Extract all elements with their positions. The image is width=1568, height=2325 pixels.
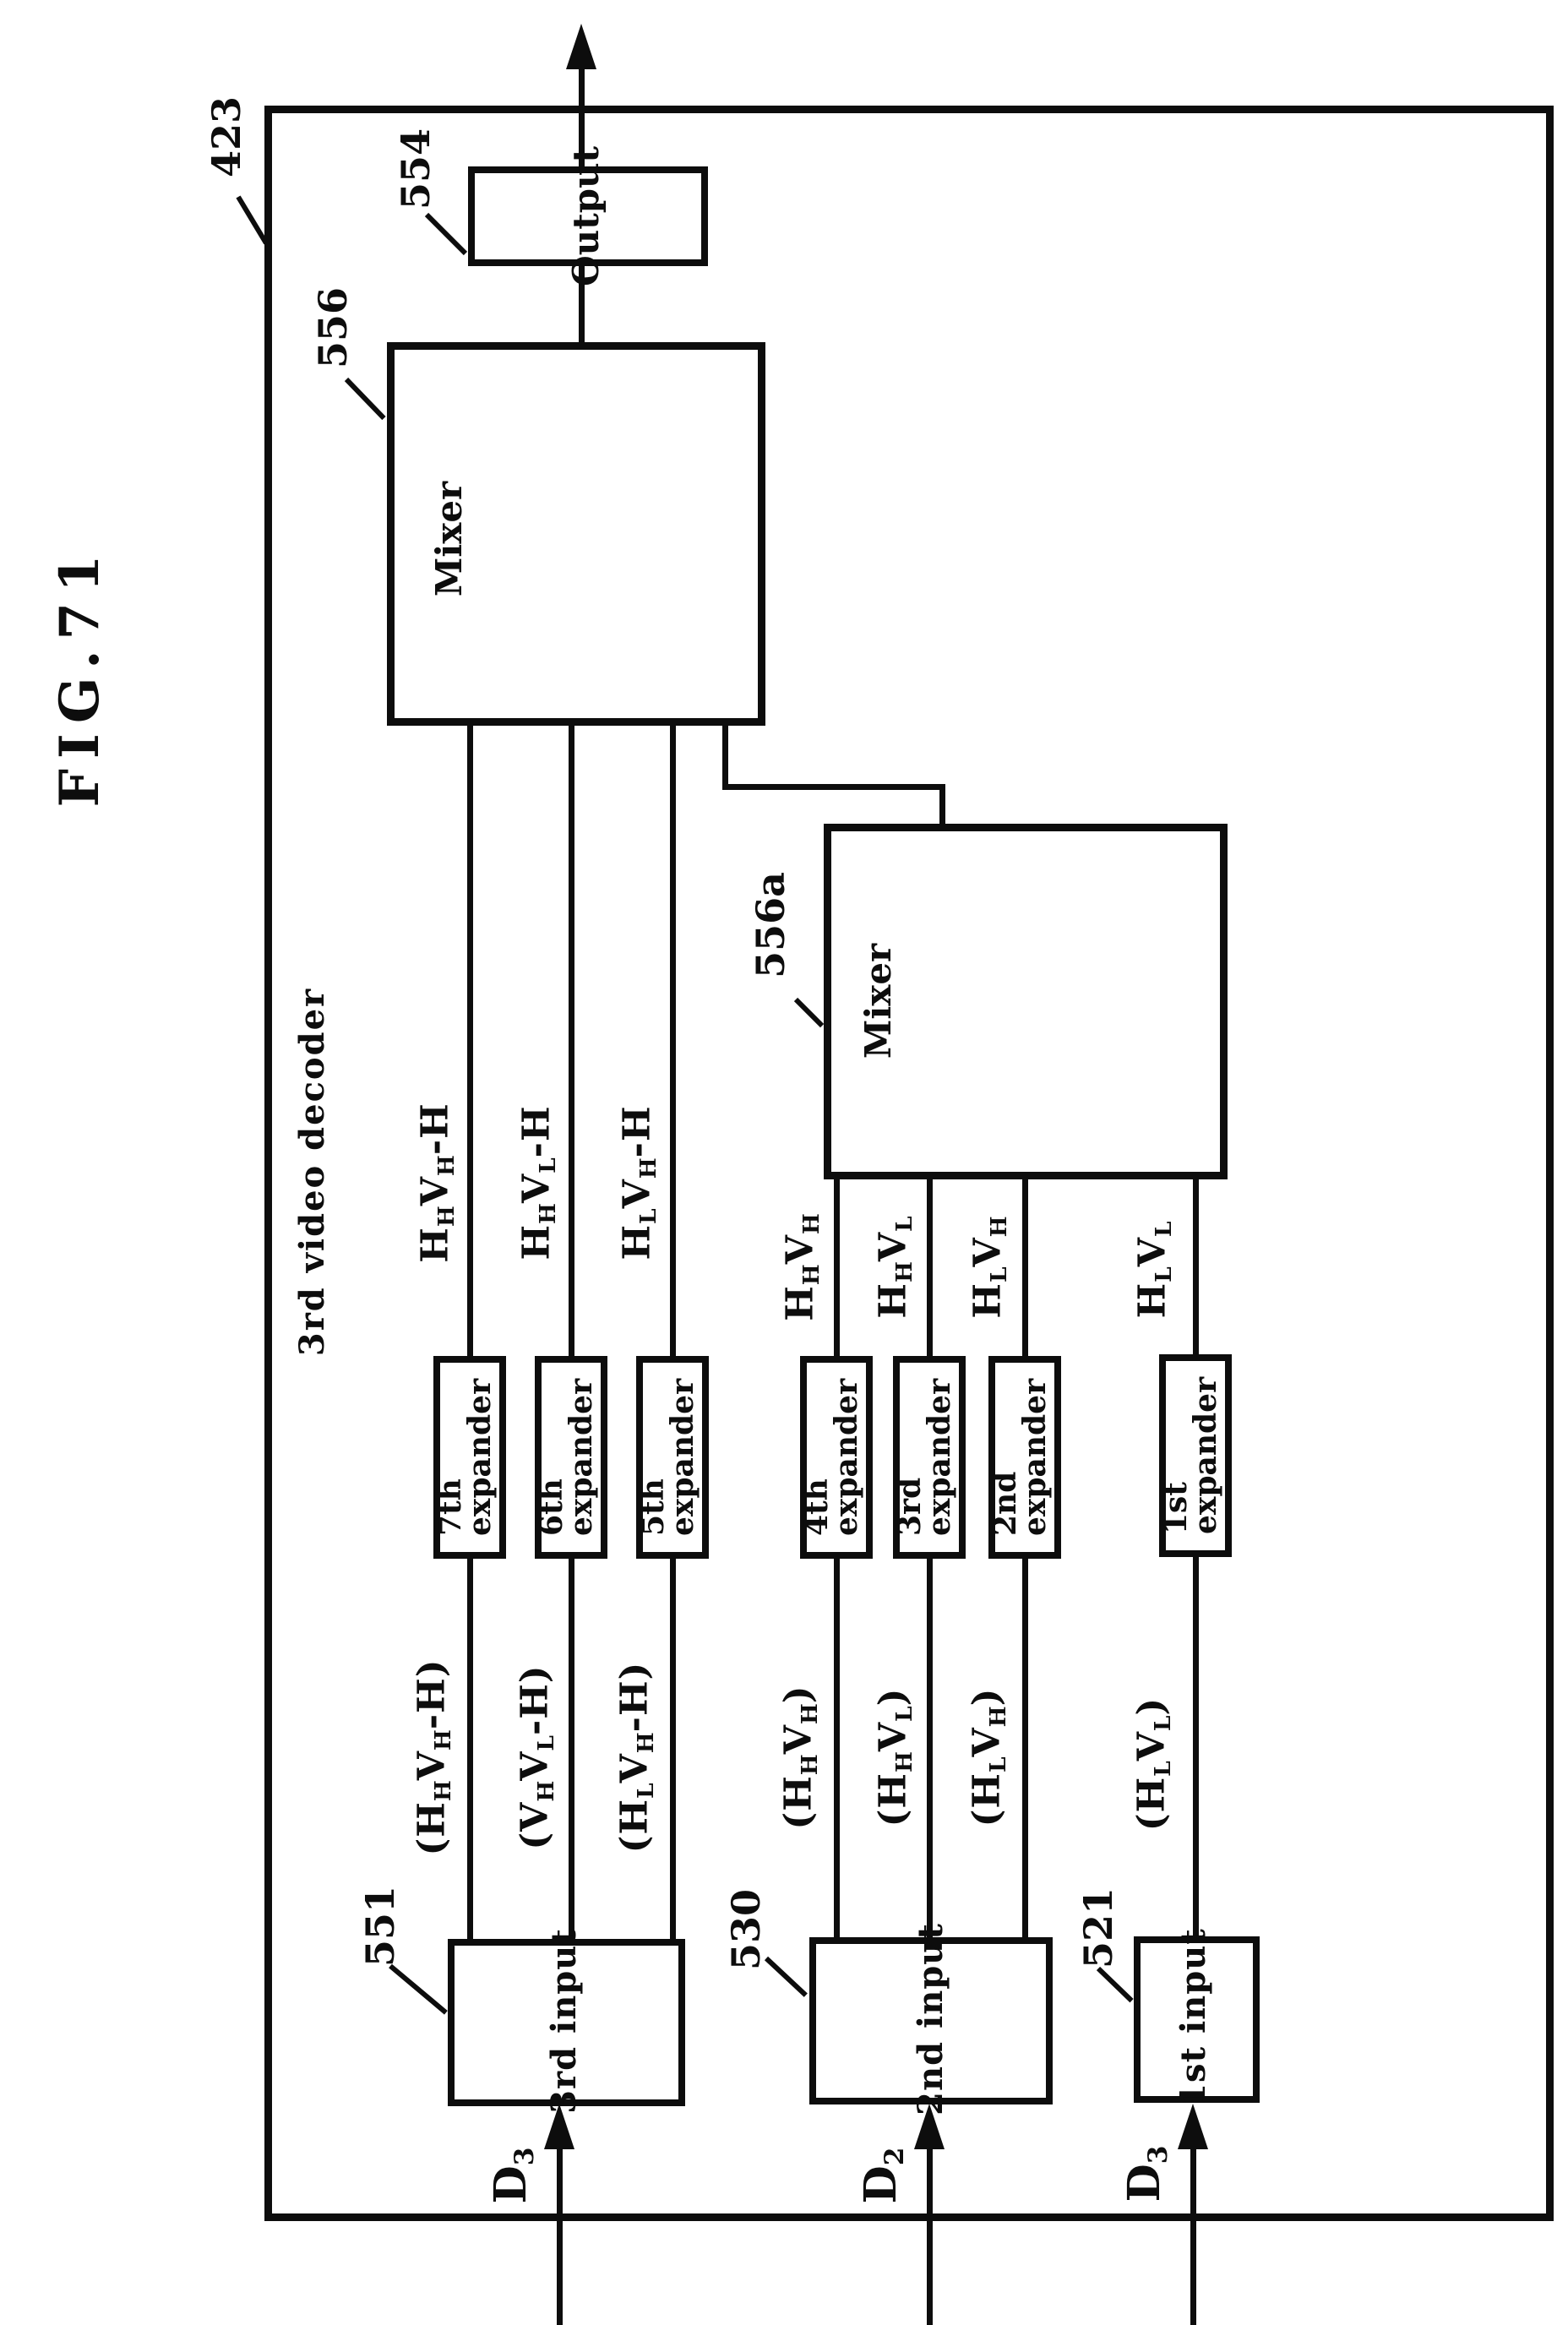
input-arrow-line: [927, 2143, 933, 2325]
connector-line: [670, 1555, 676, 1943]
expander-label-6th: 6thexpander: [537, 1379, 596, 1536]
ref-label-556a: 556a: [751, 872, 790, 978]
expander-label-1st: 1stexpander: [1162, 1377, 1221, 1534]
signal-label-hhvh-h: HHVH-H: [417, 1103, 459, 1262]
connector-line: [927, 1175, 933, 1360]
leader-line-423: [236, 195, 268, 244]
connector-line: [1193, 1175, 1199, 1360]
connector-line: [927, 1555, 933, 1941]
signal-label-hlvl: HLVL: [1135, 1222, 1176, 1319]
patent-figure-page: FIG.71 3rd video decoder 423 Output 554 …: [0, 0, 1568, 2325]
input-arrow-line: [557, 2143, 563, 2325]
connector-line: [1022, 1175, 1028, 1360]
connector-line: [569, 721, 574, 1360]
input-box-3rd-label: 3rd input: [547, 1928, 581, 2114]
signal-label-paren-hhvl: (HHVL): [875, 1688, 917, 1827]
mixer-556a-label: Mixer: [861, 944, 896, 1059]
connector-line: [834, 1175, 840, 1360]
input-label-d3b: D3: [1123, 2146, 1172, 2202]
input-box-1st-label: 1st input: [1177, 1928, 1211, 2107]
signal-label-hhvh: HHVH: [782, 1213, 824, 1321]
figure-title: FIG.71: [53, 544, 107, 807]
signal-label-hlvh: HLVH: [970, 1216, 1011, 1318]
input-label-d3: D3: [489, 2148, 538, 2204]
connector-line: [834, 1555, 840, 1941]
signal-label-paren-hlvh-h: (HLVH-H): [617, 1662, 658, 1854]
signal-label-paren-hlvh: (HLVH): [969, 1688, 1010, 1827]
output-box-label: Output: [569, 146, 604, 286]
ref-label-556: 556: [313, 287, 352, 368]
ref-label-551: 551: [361, 1886, 400, 1967]
signal-label-paren-hlvl: (HLVL): [1134, 1697, 1175, 1831]
connector-line: [467, 1555, 473, 1943]
jog-connector-seg1: [722, 721, 728, 790]
connector-line: [467, 721, 473, 1360]
expander-label-3rd: 3rdexpander: [896, 1379, 955, 1536]
input-arrow-line: [1190, 2143, 1196, 2325]
signal-label-hhvl: HHVL: [875, 1216, 917, 1318]
signal-label-hhvl-h: HHVL-H: [519, 1105, 560, 1260]
connector-line: [569, 1555, 574, 1943]
ref-label-521: 521: [1079, 1887, 1118, 1968]
jog-connector-seg3: [939, 784, 945, 828]
ref-label-554: 554: [396, 128, 435, 210]
signal-label-paren-hhvh: (HHVH): [781, 1685, 822, 1829]
expander-label-2nd: 2ndexpander: [991, 1379, 1050, 1536]
connector-line: [670, 721, 676, 1360]
signal-label-hlvh-h: HLVH-H: [619, 1105, 661, 1260]
jog-connector-seg2: [722, 784, 945, 790]
input-box-2nd-label: 2nd input: [914, 1923, 948, 2115]
expander-label-4th: 4thexpander: [803, 1379, 862, 1536]
input-label-d2: D2: [859, 2148, 908, 2204]
expander-label-7th: 7thexpander: [436, 1379, 495, 1536]
mixer-556-label: Mixer: [432, 482, 467, 596]
system-label: 3rd video decoder: [296, 988, 329, 1356]
connector-line: [1193, 1554, 1199, 1941]
expander-label-5th: 5thexpander: [639, 1379, 698, 1536]
ref-label-423: 423: [207, 96, 246, 177]
connector-line: [1022, 1555, 1028, 1941]
ref-label-530: 530: [727, 1889, 765, 1970]
signal-label-paren-hhvh-h: (HHVH-H): [414, 1658, 455, 1855]
signal-label-paren-vhvl-h: (VHVL-H): [517, 1664, 558, 1849]
